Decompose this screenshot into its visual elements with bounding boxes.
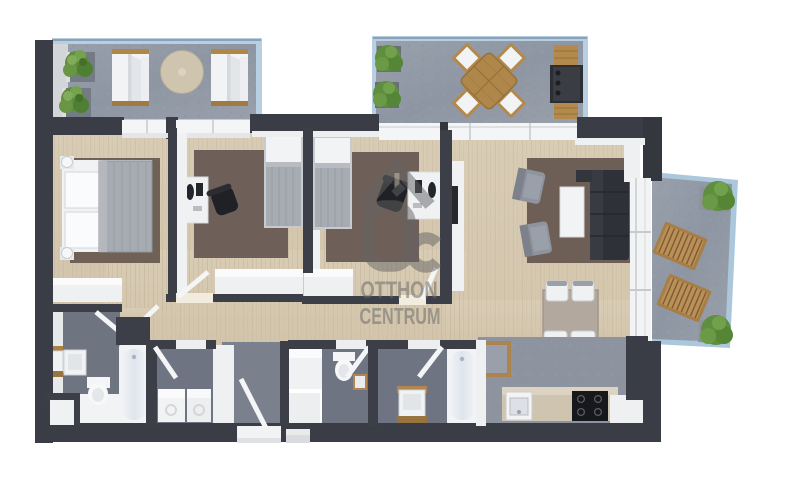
svg-text:CENTRUM: CENTRUM (360, 303, 441, 329)
svg-text:OTTHON: OTTHON (361, 277, 438, 304)
